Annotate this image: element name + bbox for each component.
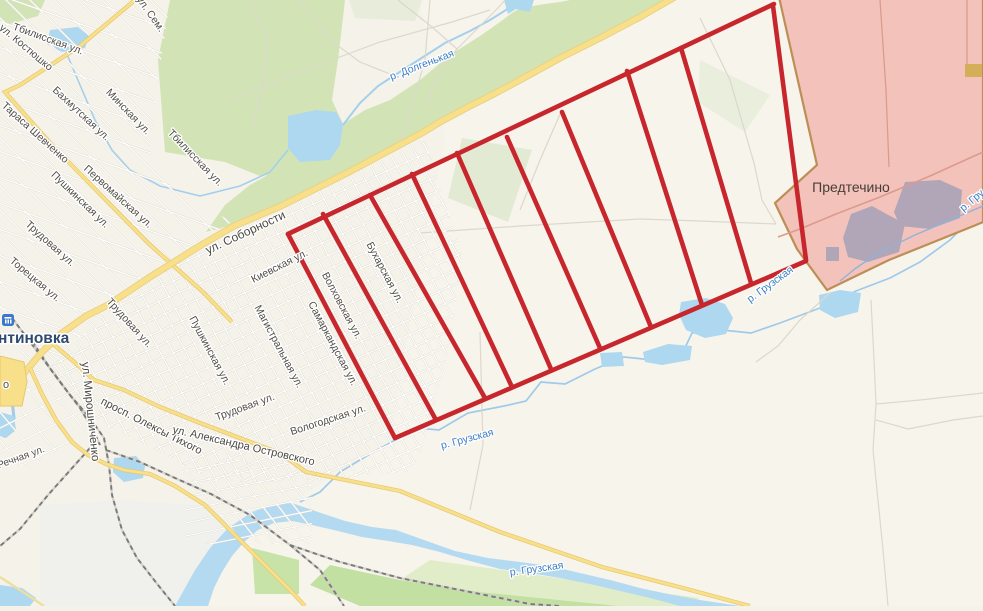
svg-text:о: о bbox=[3, 379, 9, 391]
svg-text:нтиновка: нтиновка bbox=[0, 330, 70, 347]
svg-text:Предтечино: Предтечино bbox=[812, 179, 890, 195]
